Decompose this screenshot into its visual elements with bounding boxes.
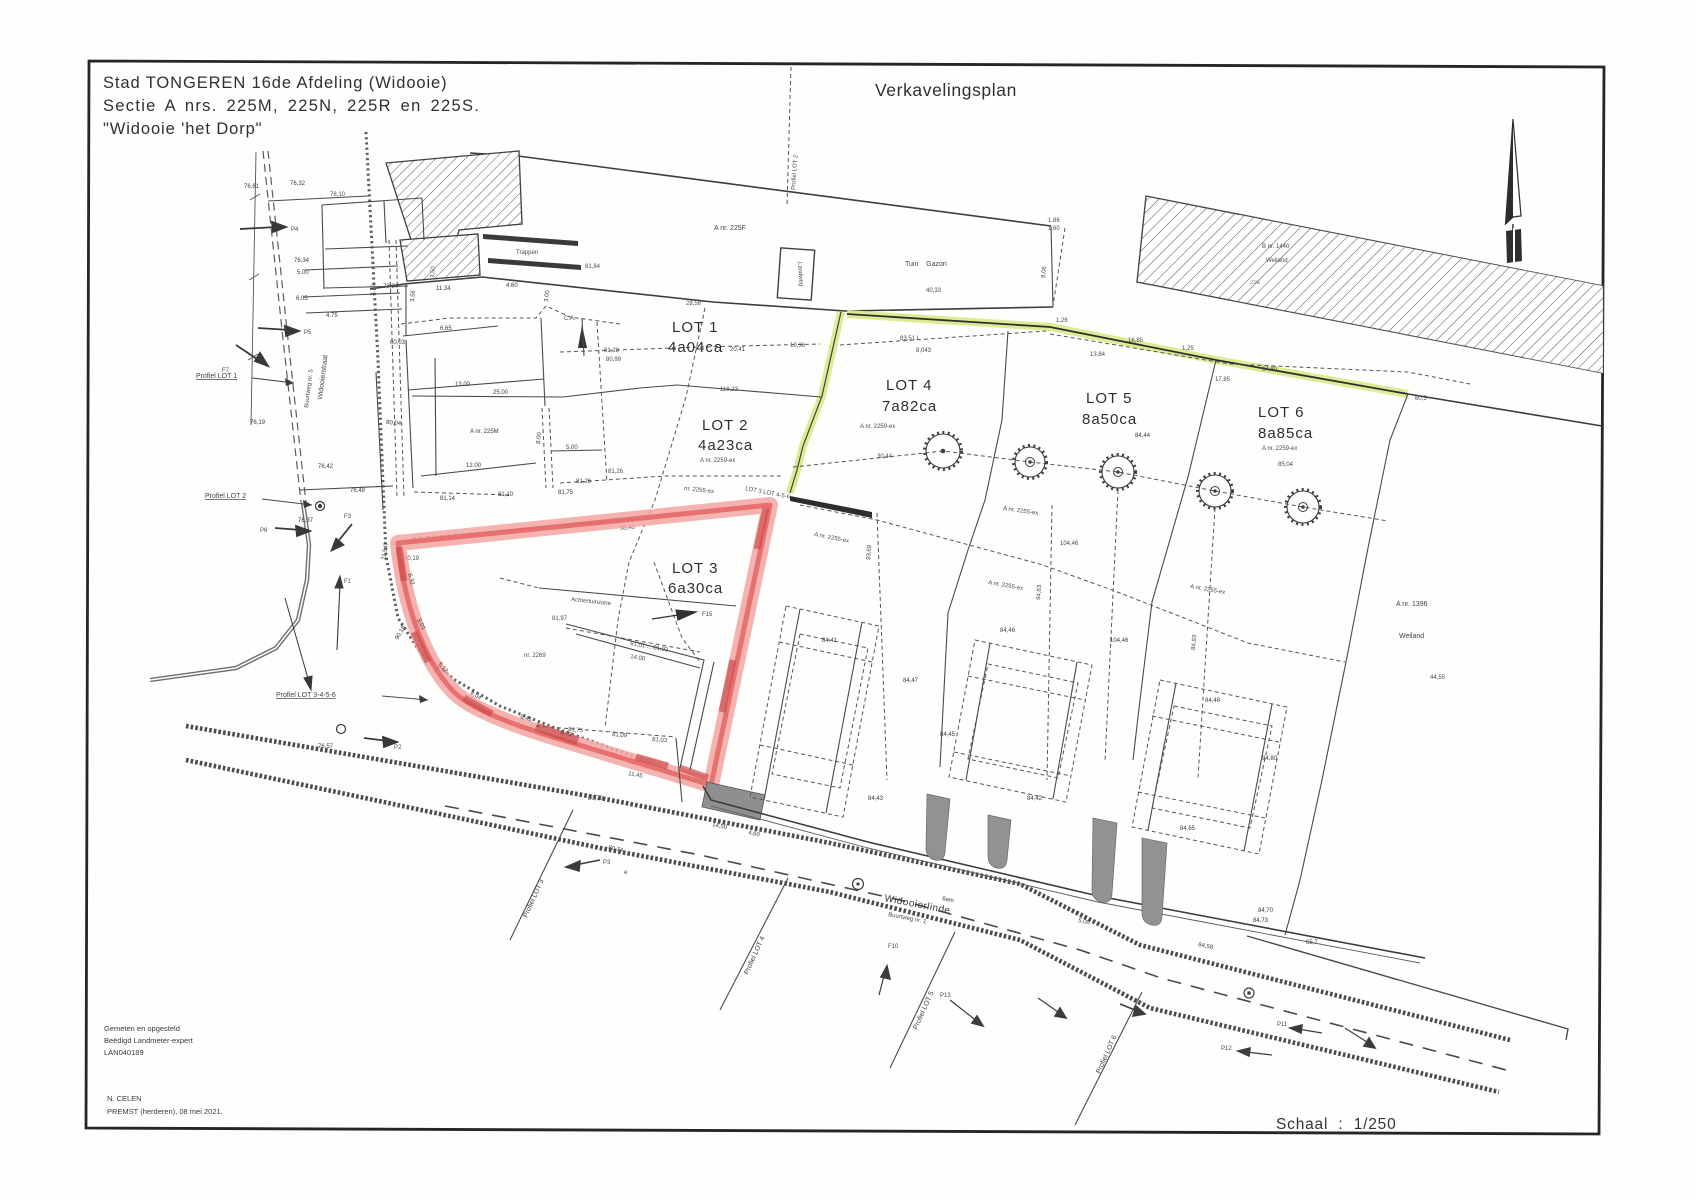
svg-text:10,36: 10,36 (790, 343, 806, 349)
svg-text:1.60: 1.60 (1048, 226, 1060, 232)
svg-text:84,48: 84,48 (1205, 698, 1221, 704)
svg-text:A nr. 225M: A nr. 225M (470, 429, 499, 435)
svg-text:25.00: 25.00 (493, 390, 509, 396)
svg-text:76,42: 76,42 (318, 464, 334, 470)
svg-text:76,37: 76,37 (298, 518, 314, 524)
svg-text:84,73: 84,73 (1253, 918, 1269, 924)
svg-text:Profiel LOT 2: Profiel LOT 2 (205, 493, 246, 500)
svg-text:65,7: 65,7 (1306, 940, 1318, 946)
svg-text:12.00: 12.00 (466, 463, 482, 469)
svg-text:LOT 2: LOT 2 (702, 417, 748, 434)
svg-text:Verkavelingsplan: Verkavelingsplan (875, 80, 1017, 100)
svg-text:Schaal : 1/250: Schaal : 1/250 (1276, 1116, 1397, 1133)
svg-text:LOT 5: LOT 5 (1086, 390, 1132, 407)
svg-text:3,70: 3,70 (370, 283, 377, 296)
svg-text:8,043: 8,043 (916, 348, 932, 354)
svg-text:76,48: 76,48 (350, 488, 366, 494)
svg-text:3,50: 3,50 (430, 265, 437, 278)
svg-text:Trappen: Trappen (516, 250, 538, 256)
svg-text:81,26: 81,26 (608, 469, 624, 475)
svg-text:11.34: 11.34 (436, 286, 451, 292)
svg-text:60,03: 60,03 (390, 340, 406, 346)
svg-text:Profiel LOT 3-4-5-6: Profiel LOT 3-4-5-6 (276, 692, 336, 699)
svg-text:7a82ca: 7a82ca (882, 398, 937, 415)
svg-text:84,42: 84,42 (1027, 796, 1043, 802)
svg-text:76,32: 76,32 (290, 181, 306, 187)
svg-text:B nr. 1440: B nr. 1440 (1262, 244, 1290, 250)
svg-text:P11: P11 (1277, 1022, 1288, 1028)
svg-text:LOT 1: LOT 1 (672, 319, 718, 336)
svg-text:78,34: 78,34 (383, 284, 399, 290)
svg-text:LAN040189: LAN040189 (104, 1048, 144, 1057)
svg-text:8a85ca: 8a85ca (1258, 425, 1313, 442)
svg-text:1,25: 1,25 (1182, 346, 1194, 352)
svg-text:A nr. 2259-ex: A nr. 2259-ex (700, 458, 735, 464)
svg-text:3,56: 3,56 (410, 289, 417, 302)
svg-text:F15: F15 (702, 612, 713, 618)
svg-text:81,84: 81,84 (585, 264, 601, 270)
svg-text:Tuin Gazon: Tuin Gazon (905, 261, 947, 268)
svg-text:80,04: 80,04 (386, 420, 402, 427)
svg-text:Weiland: Weiland (1399, 633, 1424, 640)
svg-text:81,75: 81,75 (558, 490, 574, 496)
svg-text:4a23ca: 4a23ca (698, 437, 753, 454)
svg-text:13.00: 13.00 (455, 382, 471, 388)
svg-text:84,44: 84,44 (1135, 433, 1151, 439)
svg-text:6a30ca: 6a30ca (668, 580, 723, 597)
svg-text:P13: P13 (940, 993, 951, 999)
svg-text:17,85: 17,85 (1215, 377, 1231, 383)
svg-text:8.00: 8.00 (536, 431, 543, 444)
svg-text:84,46: 84,46 (1000, 628, 1016, 634)
svg-text:84,70: 84,70 (1258, 908, 1274, 914)
svg-text:84,45: 84,45 (940, 732, 956, 738)
svg-text:F1: F1 (344, 579, 352, 585)
svg-text:80,79: 80,79 (588, 796, 604, 802)
svg-text:"Widooie 'het Dorp": "Widooie 'het Dorp" (103, 120, 262, 138)
svg-text:C.A.: C.A. (564, 316, 576, 322)
svg-text:84,47: 84,47 (903, 678, 919, 684)
svg-text:nr. 2269: nr. 2269 (524, 653, 546, 659)
svg-text:76,19: 76,19 (250, 420, 266, 426)
svg-text:LOT 6: LOT 6 (1258, 404, 1304, 421)
svg-text:81,14: 81,14 (440, 496, 456, 502)
svg-text:16,85: 16,85 (1128, 338, 1144, 344)
svg-text:A nr. 225F: A nr. 225F (714, 225, 746, 232)
svg-text:5.00: 5.00 (297, 270, 309, 276)
svg-text:81,10: 81,10 (498, 492, 514, 498)
svg-text:81,26: 81,26 (576, 479, 592, 485)
svg-text:104,46: 104,46 (1060, 541, 1079, 547)
svg-text:P12: P12 (1221, 1046, 1232, 1052)
svg-text:40,33: 40,33 (926, 288, 942, 294)
svg-text:85,04: 85,04 (1278, 462, 1294, 468)
svg-text:60,5: 60,5 (1415, 396, 1427, 402)
svg-text:4.75: 4.75 (326, 313, 338, 319)
svg-text:4.60: 4.60 (506, 283, 518, 289)
svg-text:13,84: 13,84 (1090, 352, 1106, 358)
svg-text:29a: 29a (1250, 280, 1261, 286)
svg-text:44,55: 44,55 (1430, 675, 1446, 681)
svg-text:20,41: 20,41 (730, 347, 746, 353)
svg-text:A nr. 2259-ex: A nr. 2259-ex (860, 424, 895, 430)
svg-text:5.00: 5.00 (566, 445, 578, 451)
svg-text:8,06: 8,06 (1041, 265, 1048, 278)
svg-text:P5: P5 (304, 330, 312, 336)
svg-text:1,26: 1,26 (1056, 318, 1068, 324)
svg-text:F3: F3 (344, 514, 352, 520)
svg-text:84,65: 84,65 (1180, 826, 1196, 832)
svg-text:A nr. 2259-ex: A nr. 2259-ex (1262, 446, 1297, 452)
svg-text:P3: P3 (603, 860, 611, 866)
svg-text:A nr. 1396: A nr. 1396 (1396, 601, 1428, 608)
svg-text:6,65: 6,65 (440, 326, 452, 332)
svg-text:LOT 3: LOT 3 (672, 560, 718, 577)
svg-text:84,43: 84,43 (868, 796, 884, 802)
svg-text:LOT 4: LOT 4 (886, 377, 932, 394)
svg-text:8a50ca: 8a50ca (1082, 411, 1137, 428)
svg-text:76,34: 76,34 (294, 258, 310, 264)
svg-text:3.00: 3.00 (544, 289, 551, 302)
svg-text:80,99: 80,99 (606, 357, 622, 363)
svg-text:Stad TONGEREN 16de Afdeling (W: Stad TONGEREN 16de Afdeling (Widooie) (103, 74, 448, 92)
svg-text:81,28: 81,28 (604, 348, 620, 354)
svg-text:81,97: 81,97 (552, 616, 568, 622)
svg-text:78,10: 78,10 (330, 192, 346, 198)
svg-text:76,61: 76,61 (244, 184, 260, 190)
svg-text:6.05: 6.05 (296, 296, 308, 302)
svg-text:30,44: 30,44 (877, 454, 893, 460)
svg-text:N. CELEN: N. CELEN (107, 1094, 142, 1103)
svg-text:P6: P6 (260, 528, 268, 534)
svg-text:64,80: 64,80 (1262, 367, 1278, 373)
svg-text:104,46: 104,46 (1110, 638, 1129, 644)
svg-text:Sectie A nrs. 225M, 225N, 225R: Sectie A nrs. 225M, 225N, 225R en 225S. (103, 97, 480, 115)
svg-text:83,51 L: 83,51 L (900, 336, 921, 342)
svg-text:Profiel LOT 1: Profiel LOT 1 (196, 373, 237, 380)
svg-text:Weiland: Weiland (1266, 258, 1288, 264)
svg-text:Beëdigd Landmeter-expert: Beëdigd Landmeter-expert (104, 1036, 194, 1045)
svg-text:Gemeten en opgesteld: Gemeten en opgesteld (104, 1024, 180, 1033)
svg-text:118,23: 118,23 (720, 387, 739, 393)
svg-text:PREMST (herderen), 08 mei 2021: PREMST (herderen), 08 mei 2021. (107, 1107, 223, 1116)
svg-text:P4: P4 (291, 227, 299, 233)
svg-text:1.86: 1.86 (1048, 218, 1060, 224)
svg-text:P2: P2 (394, 745, 402, 751)
svg-text:F10: F10 (888, 944, 899, 950)
svg-text:4a04ca: 4a04ca (668, 339, 723, 356)
svg-text:28,58: 28,58 (686, 301, 702, 307)
